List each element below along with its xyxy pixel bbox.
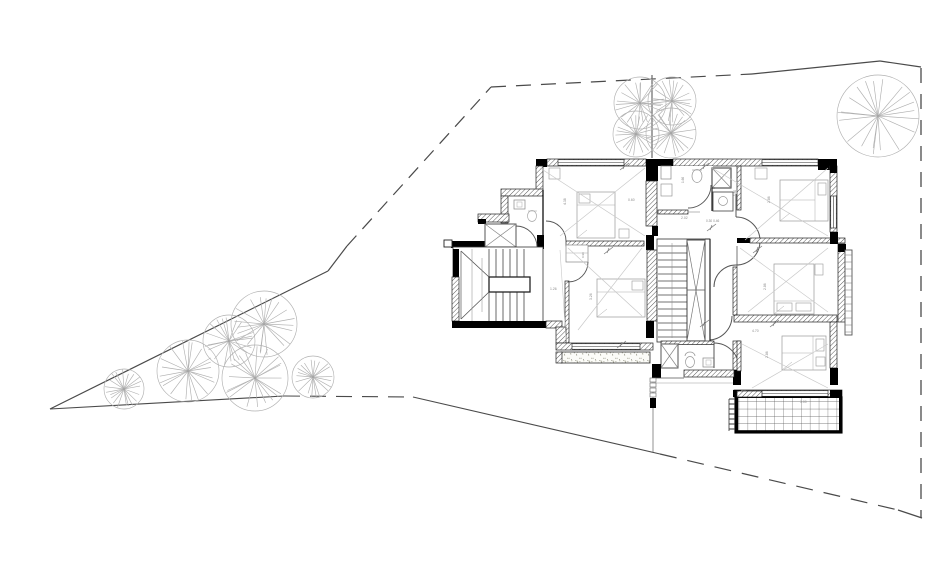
- svg-text:0.60: 0.60: [628, 198, 635, 202]
- svg-text:1.80: 1.80: [733, 190, 737, 196]
- svg-text:0.30 0.46: 0.30 0.46: [706, 219, 720, 223]
- svg-text:3.00: 3.00: [800, 400, 807, 404]
- svg-text:3.26: 3.26: [589, 293, 593, 300]
- svg-text:0.90: 0.90: [581, 252, 585, 258]
- svg-text:2.86: 2.86: [763, 283, 767, 290]
- svg-text:2.86: 2.86: [767, 196, 771, 203]
- svg-text:1.26: 1.26: [550, 287, 557, 291]
- svg-text:2.86: 2.86: [765, 351, 769, 358]
- svg-text:2.02: 2.02: [681, 216, 688, 220]
- svg-text:1.66: 1.66: [681, 177, 685, 183]
- svg-text:4.70: 4.70: [752, 329, 759, 333]
- svg-text:4.38: 4.38: [563, 198, 567, 205]
